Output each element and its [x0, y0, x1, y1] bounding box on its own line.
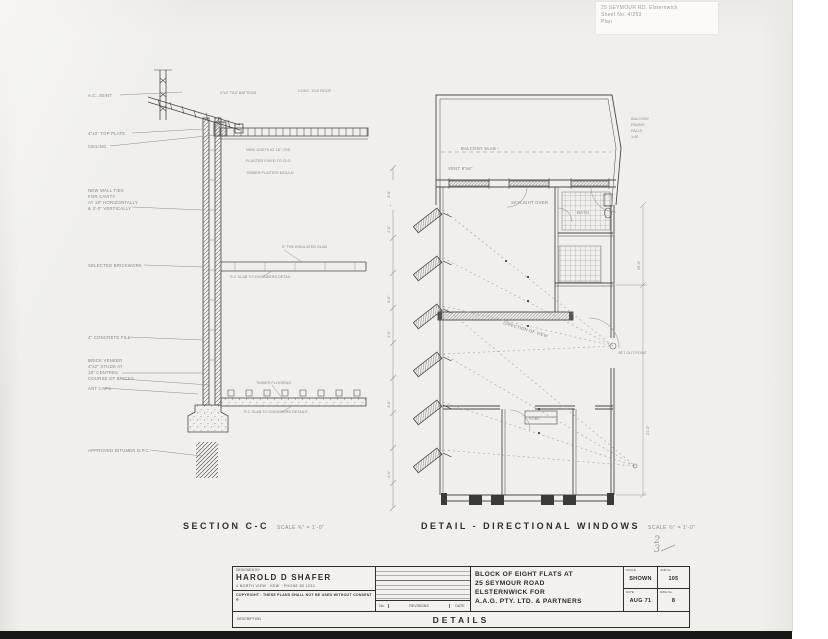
ann-battens: 3"x2" TILE BATTENS: [220, 91, 257, 95]
ann-dim-l5: 3'-6": [387, 400, 391, 408]
section-scale-note: SCALE ¾" = 1'-0": [277, 525, 324, 531]
plan-dimension-right: [616, 202, 647, 498]
ann-brickwork: SELECTED BRICKWORK: [88, 263, 142, 268]
sticker-line3: Plan: [601, 19, 713, 26]
ann-dpc: APPROVED BITUMEN D.P.C.: [88, 448, 150, 453]
scale-cell: SCALE SHOWN: [624, 567, 658, 589]
ann-vent: VENT 9"x6": [448, 166, 473, 171]
section-title-text: SECTION C-C: [183, 521, 269, 531]
section-drawing: A.C. JOINT 4"x3" TOP PLATE CEILING NEW W…: [70, 40, 370, 545]
section-title: SECTION C-CSCALE ¾" = 1'-0": [183, 521, 324, 531]
ann-skylight: SKYLIGHT OVER: [511, 200, 548, 205]
ann-flooring: TIMBER FLOORING: [256, 381, 291, 385]
revisions-label: REVISIONS: [389, 604, 449, 608]
description-value: DETAILS: [233, 615, 689, 625]
meta-grid: SCALE SHOWN JOB No. 105 DATE AUG 71 DWG …: [624, 567, 689, 611]
dwg-label: DWG No.: [660, 590, 673, 594]
ann-robe: ROBE: [529, 417, 540, 421]
ann-veneer2: 4"x2" STUDS AT: [88, 364, 123, 369]
ann-dim-l4: 4'-0": [387, 330, 391, 338]
ann-joists: NEW JOISTS AT 18" CRS: [246, 148, 291, 152]
ann-note1: BALCONY: [631, 117, 650, 121]
project-line3: ELSTERNWICK FOR: [475, 588, 619, 597]
ann-dim-l6: 4'-0": [387, 470, 391, 478]
project-cell: BLOCK OF EIGHT FLATS AT 25 SEYMOUR ROAD …: [471, 567, 624, 611]
date-label: DATE: [626, 590, 634, 594]
ann-bath: BATH: [577, 210, 589, 215]
plan-linework: [436, 95, 637, 505]
ann-ties1: NEW WALL TIES: [88, 188, 124, 193]
ann-fill: 4" CONCRETE FILL: [88, 335, 131, 340]
sticker-line2: Sheet No. 4/253: [601, 12, 713, 19]
ann-note3: FALLS: [631, 129, 643, 133]
ann-rcslab1: R.C SLAB TO ENGINEERS DETAIL: [230, 275, 291, 279]
ann-dim-right1: 29'-6": [637, 260, 641, 270]
ann-veneer3: 18" CENTRES: [88, 370, 118, 375]
ann-dim-l2: 4'-0": [387, 225, 391, 233]
project-line2: 25 SEYMOUR ROAD: [475, 579, 619, 588]
ann-mould: TIMBER PLASTER MOULD: [246, 171, 294, 175]
ann-dim-l1: 3'-6": [387, 190, 391, 198]
ann-ties4: & 3'-0" VERTICALLY: [88, 206, 131, 211]
ann-setout: SET OUT POINT: [618, 351, 648, 355]
architect-cell: DESIGNED BY HAROLD D SHAFER 4 NORTH VIEW…: [233, 567, 376, 611]
ann-rcslab2: R.C SLAB TO ENGINEERS DETAILS: [244, 410, 308, 414]
revision-date-label: DATE: [449, 604, 470, 608]
ann-ceiling: CEILING: [88, 144, 107, 149]
ann-ant: ANT CAPS: [88, 386, 111, 391]
architect-address: 4 NORTH VIEW · KEW · PHONE 80 1234: [233, 582, 375, 591]
ann-dim-right2: 21'-0": [646, 425, 650, 435]
scale-label: SCALE: [626, 568, 636, 572]
revisions-cell: No. REVISIONS DATE: [376, 567, 471, 611]
plan-title-text: DETAIL - DIRECTIONAL WINDOWS: [421, 521, 640, 531]
ann-ac-joint: A.C. JOINT: [88, 93, 112, 98]
reference-sticker: 25 SEYMOUR RD. Elsternwick Sheet No. 4/2…: [596, 2, 718, 34]
project-line4: A.A.G. PTY. LTD. & PARTNERS: [475, 597, 619, 606]
scanned-drawing-sheet: 25 SEYMOUR RD. Elsternwick Sheet No. 4/2…: [0, 0, 828, 639]
ann-note4: 1:40: [631, 135, 638, 139]
plan-drawing: BALCONY SLAB ↑ VENT 9"x6" SKYLIGHT OVER …: [385, 80, 685, 550]
architect-name: HAROLD D SHAFER: [233, 572, 375, 582]
copyright-note: COPYRIGHT · THESE PLANS SHALL NOT BE USE…: [233, 591, 375, 604]
ann-ties3: AT 18" HORIZONTALLY: [88, 200, 138, 205]
plan-annotations: BALCONY SLAB ↑ VENT 9"x6" SKYLIGHT OVER …: [387, 117, 650, 478]
sight-line-fan: [443, 210, 635, 466]
ann-slab5: 5" THK INSULATED SLAB: [282, 245, 327, 249]
dwg-cell: DWG No. 8: [658, 589, 689, 611]
sticker-line1: 25 SEYMOUR RD. Elsternwick: [601, 5, 713, 12]
ann-veneer1: BRICK VENEER: [88, 358, 122, 363]
job-cell: JOB No. 105: [658, 567, 689, 589]
ann-note2: PAVING: [631, 123, 645, 127]
fraction-slash: [657, 545, 679, 551]
revision-no-label: No.: [376, 604, 389, 608]
dwg-value: 8: [658, 598, 689, 604]
ann-top-plate: 4"x3" TOP PLATE: [88, 131, 125, 136]
sight-line-dots: [505, 260, 540, 434]
description-row: DESCRIPTION DETAILS: [233, 611, 689, 627]
scan-bottom-bar: [0, 631, 792, 639]
section-linework: [148, 70, 368, 478]
ann-dim-l3: 3'-6": [387, 295, 391, 303]
job-value: 105: [658, 576, 689, 582]
date-value: AUG 71: [624, 598, 657, 604]
pencil-fraction-mark: 2 3: [646, 536, 668, 562]
title-block: DESIGNED BY HAROLD D SHAFER 4 NORTH VIEW…: [232, 566, 690, 628]
ann-roof: CONC. TILE ROOF: [298, 89, 332, 93]
job-label: JOB No.: [660, 568, 671, 572]
ann-veneer4: COURSE OF BRICKS: [88, 376, 134, 381]
ann-balcony: BALCONY SLAB ↑: [461, 146, 500, 151]
scale-value: SHOWN: [624, 576, 657, 582]
plan-title: DETAIL - DIRECTIONAL WINDOWSSCALE ½" = 1…: [421, 521, 695, 531]
project-line1: BLOCK OF EIGHT FLATS AT: [475, 570, 619, 579]
date-cell: DATE AUG 71: [624, 589, 658, 611]
plan-scale-note: SCALE ½" = 1'-0": [648, 525, 695, 531]
ann-plaster: PLASTER FIXED TO CLG: [246, 159, 291, 163]
ann-ties2: FOR CAVITY: [88, 194, 115, 199]
revisions-rule-lines: [376, 567, 470, 600]
